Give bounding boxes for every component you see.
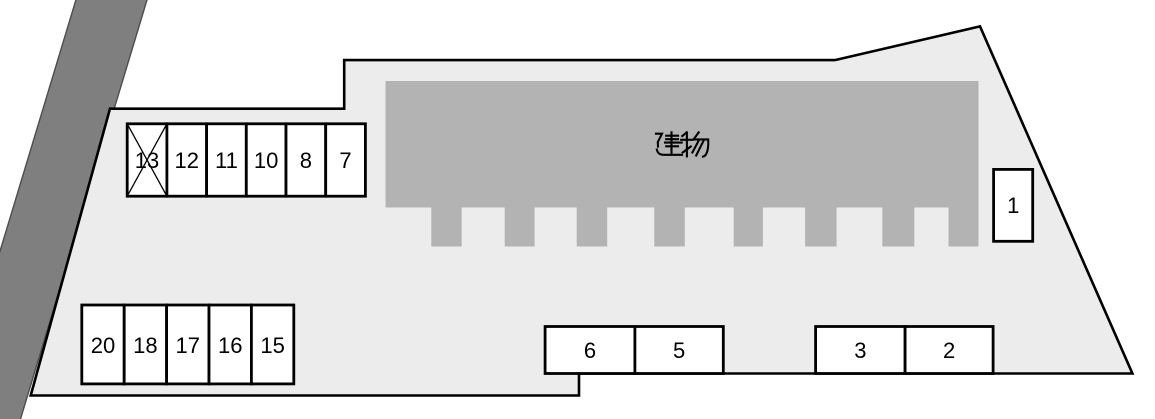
svg-text:8: 8 bbox=[300, 148, 312, 173]
svg-text:11: 11 bbox=[215, 148, 238, 173]
svg-text:6: 6 bbox=[584, 338, 596, 363]
svg-text:3: 3 bbox=[854, 338, 866, 363]
svg-text:17: 17 bbox=[176, 333, 200, 358]
svg-text:16: 16 bbox=[218, 333, 242, 358]
svg-text:20: 20 bbox=[91, 333, 115, 358]
svg-text:2: 2 bbox=[943, 338, 955, 363]
svg-text:10: 10 bbox=[254, 148, 278, 173]
svg-text:5: 5 bbox=[673, 338, 685, 363]
svg-text:12: 12 bbox=[175, 148, 199, 173]
svg-text:13: 13 bbox=[135, 148, 159, 173]
svg-text:18: 18 bbox=[133, 333, 157, 358]
svg-text:7: 7 bbox=[339, 148, 351, 173]
svg-text:1: 1 bbox=[1007, 193, 1019, 218]
svg-text:15: 15 bbox=[260, 333, 284, 358]
